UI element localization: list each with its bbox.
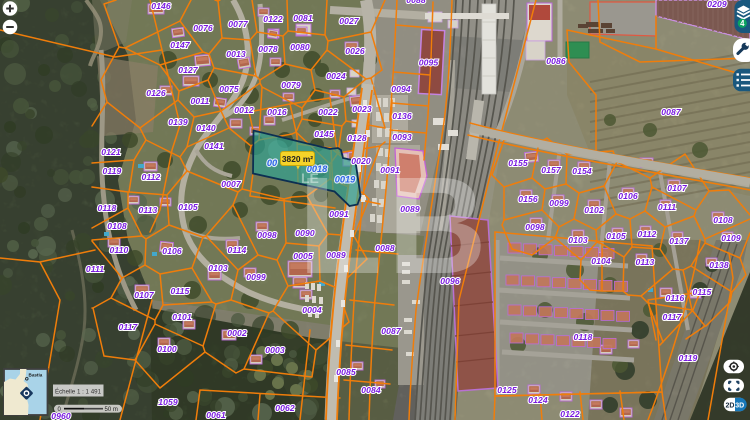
svg-text:0110: 0110 bbox=[110, 245, 129, 255]
svg-text:0108: 0108 bbox=[107, 221, 127, 231]
svg-text:0146: 0146 bbox=[151, 1, 171, 11]
svg-text:0117: 0117 bbox=[119, 322, 139, 332]
svg-text:0111: 0111 bbox=[86, 264, 104, 274]
svg-text:0024: 0024 bbox=[326, 71, 346, 81]
svg-text:0106: 0106 bbox=[618, 191, 638, 201]
svg-text:0011: 0011 bbox=[191, 96, 210, 106]
svg-text:0088: 0088 bbox=[375, 243, 395, 253]
svg-text:0104: 0104 bbox=[591, 256, 611, 266]
svg-text:0013: 0013 bbox=[226, 49, 246, 59]
svg-text:0103: 0103 bbox=[208, 263, 228, 273]
svg-text:0119: 0119 bbox=[679, 353, 698, 363]
svg-text:0016: 0016 bbox=[267, 107, 287, 117]
svg-text:0098: 0098 bbox=[525, 222, 545, 232]
svg-text:0112: 0112 bbox=[638, 229, 657, 239]
svg-text:0117: 0117 bbox=[663, 312, 683, 322]
svg-text:0093: 0093 bbox=[392, 132, 412, 142]
svg-text:2D: 2D bbox=[726, 402, 735, 409]
svg-text:0108: 0108 bbox=[713, 215, 733, 225]
svg-text:0112: 0112 bbox=[142, 172, 161, 182]
svg-text:0127: 0127 bbox=[178, 65, 199, 75]
svg-text:0012: 0012 bbox=[234, 105, 254, 115]
svg-text:0091: 0091 bbox=[380, 165, 400, 175]
svg-text:0122: 0122 bbox=[560, 409, 580, 419]
svg-text:0084: 0084 bbox=[361, 385, 381, 395]
svg-text:0113: 0113 bbox=[139, 205, 158, 215]
svg-text:0002: 0002 bbox=[227, 328, 247, 338]
svg-text:0019: 0019 bbox=[335, 175, 356, 185]
svg-text:0147: 0147 bbox=[170, 40, 191, 50]
svg-text:0122: 0122 bbox=[263, 14, 283, 24]
svg-text:0106: 0106 bbox=[162, 246, 182, 256]
svg-text:0114: 0114 bbox=[228, 245, 247, 255]
svg-text:0111: 0111 bbox=[658, 202, 676, 212]
svg-text:0062: 0062 bbox=[275, 403, 295, 413]
svg-text:0061: 0061 bbox=[206, 410, 226, 420]
svg-text:0118: 0118 bbox=[98, 203, 117, 213]
svg-text:0137: 0137 bbox=[669, 236, 690, 246]
svg-text:0005: 0005 bbox=[293, 251, 313, 261]
svg-text:3D: 3D bbox=[735, 402, 744, 409]
svg-text:0079: 0079 bbox=[281, 80, 301, 90]
svg-text:0121: 0121 bbox=[101, 147, 121, 157]
svg-text:0102: 0102 bbox=[584, 205, 604, 215]
svg-text:0141: 0141 bbox=[204, 141, 224, 151]
svg-text:0089: 0089 bbox=[400, 204, 420, 214]
svg-text:0100: 0100 bbox=[157, 344, 177, 354]
svg-text:0115: 0115 bbox=[693, 287, 712, 297]
svg-text:4: 4 bbox=[740, 19, 745, 28]
svg-text:Échelle 1 : 1 491: Échelle 1 : 1 491 bbox=[55, 388, 102, 395]
svg-text:00: 00 bbox=[267, 158, 278, 168]
svg-text:1059: 1059 bbox=[158, 397, 178, 407]
svg-text:0105: 0105 bbox=[606, 231, 626, 241]
svg-text:0081: 0081 bbox=[293, 13, 313, 23]
svg-text:0155: 0155 bbox=[508, 158, 528, 168]
svg-text:0087: 0087 bbox=[381, 326, 402, 336]
svg-text:0088: 0088 bbox=[406, 0, 426, 5]
svg-text:0099: 0099 bbox=[246, 272, 266, 282]
svg-text:0023: 0023 bbox=[352, 104, 372, 114]
svg-text:0078: 0078 bbox=[258, 44, 278, 54]
svg-text:0075: 0075 bbox=[219, 84, 239, 94]
svg-text:0090: 0090 bbox=[295, 228, 315, 238]
svg-text:50 m: 50 m bbox=[105, 407, 118, 413]
svg-text:0156: 0156 bbox=[518, 194, 538, 204]
svg-text:0089: 0089 bbox=[326, 250, 346, 260]
svg-text:0107: 0107 bbox=[667, 183, 688, 193]
svg-text:0124: 0124 bbox=[528, 395, 548, 405]
svg-text:0004: 0004 bbox=[302, 305, 322, 315]
svg-text:0105: 0105 bbox=[178, 202, 198, 212]
svg-text:0003: 0003 bbox=[265, 345, 285, 355]
svg-text:0080: 0080 bbox=[290, 42, 310, 52]
svg-text:0157: 0157 bbox=[541, 165, 562, 175]
svg-text:0026: 0026 bbox=[345, 46, 365, 56]
svg-text:0077: 0077 bbox=[228, 19, 249, 29]
svg-text:0085: 0085 bbox=[336, 367, 356, 377]
svg-text:0116: 0116 bbox=[666, 293, 685, 303]
svg-text:0140: 0140 bbox=[196, 123, 216, 133]
svg-text:0115: 0115 bbox=[171, 286, 190, 296]
svg-text:0103: 0103 bbox=[568, 235, 588, 245]
svg-text:0087: 0087 bbox=[661, 107, 682, 117]
svg-text:0109: 0109 bbox=[721, 233, 741, 243]
svg-text:0118: 0118 bbox=[574, 332, 593, 342]
svg-text:0095: 0095 bbox=[419, 58, 439, 68]
svg-text:0145: 0145 bbox=[314, 129, 334, 139]
svg-text:0076: 0076 bbox=[193, 23, 213, 33]
svg-text:0099: 0099 bbox=[549, 198, 569, 208]
svg-text:0098: 0098 bbox=[257, 230, 277, 240]
svg-text:0138: 0138 bbox=[709, 260, 729, 270]
svg-text:0209: 0209 bbox=[707, 0, 727, 9]
svg-text:0094: 0094 bbox=[391, 84, 411, 94]
svg-text:0091: 0091 bbox=[329, 209, 349, 219]
svg-text:0101: 0101 bbox=[172, 312, 192, 322]
svg-text:0096: 0096 bbox=[440, 276, 460, 286]
svg-text:Bastia: Bastia bbox=[29, 373, 43, 378]
svg-text:0107: 0107 bbox=[134, 290, 155, 300]
svg-text:0125: 0125 bbox=[497, 385, 517, 395]
svg-text:0027: 0027 bbox=[339, 16, 360, 26]
svg-text:0119: 0119 bbox=[103, 166, 122, 176]
svg-text:0020: 0020 bbox=[351, 156, 371, 166]
svg-text:0139: 0139 bbox=[168, 117, 188, 127]
svg-text:0113: 0113 bbox=[636, 257, 655, 267]
svg-text:0128: 0128 bbox=[347, 133, 367, 143]
svg-text:0126: 0126 bbox=[146, 88, 166, 98]
svg-text:0136: 0136 bbox=[392, 111, 412, 121]
svg-text:0022: 0022 bbox=[318, 107, 338, 117]
svg-text:0154: 0154 bbox=[572, 166, 592, 176]
svg-text:3820 m²: 3820 m² bbox=[282, 154, 313, 164]
svg-text:0007: 0007 bbox=[221, 179, 242, 189]
svg-text:0086: 0086 bbox=[546, 56, 566, 66]
